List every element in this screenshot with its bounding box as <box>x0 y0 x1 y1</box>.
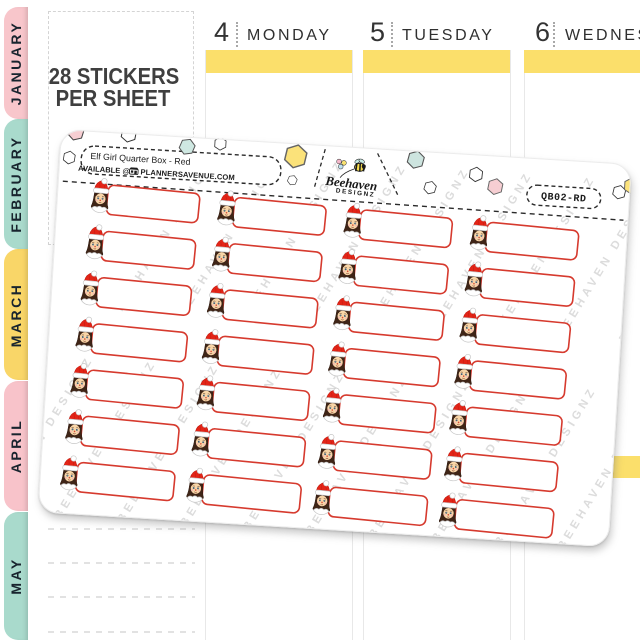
svg-text:BEEHAVEN DESIGNZ: BEEHAVEN DESIGNZ <box>617 180 632 344</box>
svg-text:QB02-RD: QB02-RD <box>541 191 587 205</box>
